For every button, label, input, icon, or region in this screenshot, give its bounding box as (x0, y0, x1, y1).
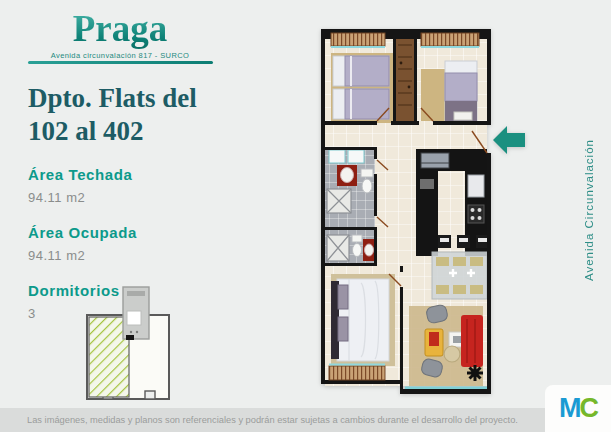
spec-label: Área Ocupada (28, 224, 137, 241)
master-bedroom (331, 274, 395, 366)
brand-block: Praga Avenida circunvalación 817 - SURCO (22, 10, 218, 60)
logo-letter-c: C (580, 393, 598, 424)
site-key-plan (75, 279, 187, 405)
living-room (409, 304, 483, 386)
dining-area (432, 235, 489, 299)
closet (396, 35, 414, 121)
project-title: Praga (22, 10, 218, 49)
bedroom-2 (421, 61, 477, 121)
stair-core (123, 287, 149, 340)
street-label: Avenida Circunvalación (583, 128, 595, 292)
spec-value: 94.11 m2 (28, 248, 137, 263)
mc-logo: M C (545, 385, 611, 432)
logo-letter-m: M (559, 393, 580, 424)
spec-area-ocupada: Área Ocupada 94.11 m2 (28, 224, 137, 263)
disclaimer-text: Las imágenes, medidas y planos son refer… (0, 408, 545, 432)
spec-label: Área Techada (28, 166, 137, 183)
project-address: Avenida circunvalación 817 - SURCO (22, 51, 218, 60)
arrow-left-icon (493, 126, 525, 154)
bedroom-1 (331, 53, 393, 123)
spec-area-techada: Área Techada 94.11 m2 (28, 166, 137, 205)
unit-heading: Dpto. Flats del 102 al 402 (28, 82, 240, 148)
apartment-floor-plan (321, 29, 527, 395)
divider-rule (28, 61, 213, 64)
spec-value: 94.11 m2 (28, 190, 137, 205)
